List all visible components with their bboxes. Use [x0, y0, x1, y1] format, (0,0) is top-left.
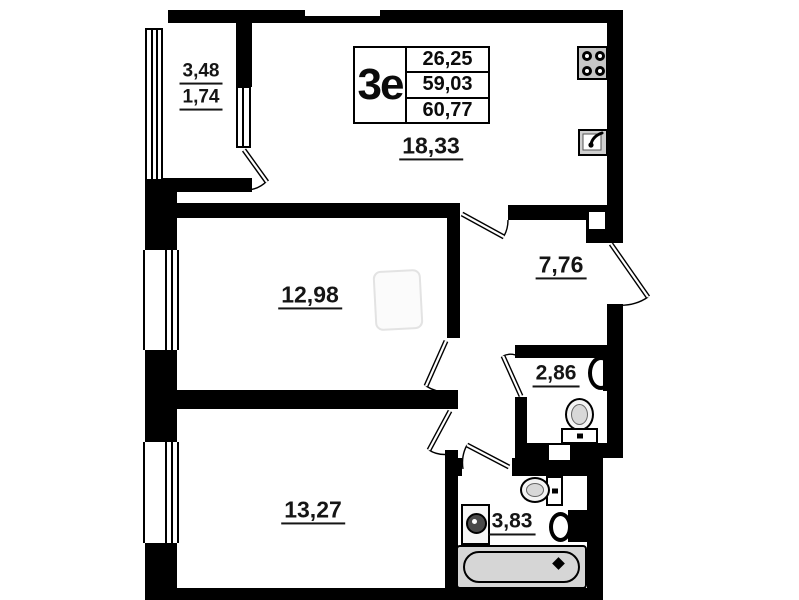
unit-areas-table: 26,25 59,03 60,77 — [407, 48, 488, 122]
mainroom-door-leaf — [462, 214, 504, 237]
wall-bedroom1-right — [447, 218, 460, 338]
bedroom2-area-label: 13,27 — [281, 497, 345, 524]
floor-plan: 3е 26,25 59,03 60,77 3,48 1,74 18,33 12,… — [0, 0, 799, 600]
wc-toilet-tank-icon — [561, 428, 598, 444]
ghost-furniture — [372, 269, 423, 331]
hallway-area-label: 7,76 — [536, 252, 587, 279]
bedroom2-door-leaf — [429, 411, 450, 450]
stove-icon — [577, 46, 608, 80]
unit-area-row: 60,77 — [407, 99, 488, 122]
balcony-glazing — [145, 28, 163, 179]
wall-mainroom-bottom-right — [508, 205, 589, 220]
mainroom-door-arc — [504, 220, 508, 236]
wall-bottom — [145, 588, 603, 600]
wall-mid-divider — [145, 390, 458, 409]
wall-wc-left — [515, 397, 527, 458]
balcony-area-counted: 1,74 — [180, 88, 223, 111]
bathroom-door-leaf — [467, 445, 509, 467]
kitchen-living-area-label: 18,33 — [399, 133, 463, 160]
wc-area-label: 2,86 — [533, 362, 580, 387]
wall-top-notch — [305, 10, 380, 16]
wall-wc-top — [515, 345, 607, 358]
wc-toilet-bowl-icon — [565, 398, 594, 431]
wall-balcony-divider — [236, 10, 252, 87]
wall-mainroom-bottom-left — [145, 203, 460, 218]
balcony-area-total: 3,48 — [180, 62, 223, 85]
unit-area-row: 26,25 — [407, 48, 488, 73]
balcony-area-labels: 3,48 1,74 — [180, 62, 223, 111]
unit-type-label: 3е — [355, 48, 407, 122]
wall-bath-right — [587, 458, 603, 600]
vent-shaft — [547, 443, 572, 462]
entrance-door-leaf — [611, 244, 648, 297]
bath-toilet-bowl-icon — [520, 477, 550, 503]
bathroom-door-arc — [463, 445, 468, 469]
bathtub-icon — [456, 545, 587, 589]
unit-area-row: 59,03 — [407, 73, 488, 98]
bathroom-area-label: 3,83 — [489, 510, 536, 535]
title-block: 3е 26,25 59,03 60,77 — [353, 46, 490, 124]
wall-wc-bottom — [527, 443, 623, 458]
bedroom1-door-leaf — [426, 341, 446, 386]
washing-machine-icon — [461, 504, 490, 545]
bedroom1-area-label: 12,98 — [278, 282, 342, 309]
wall-bath-top-left — [445, 458, 462, 476]
window-bedroom1 — [143, 250, 179, 350]
window-balcony-divider — [236, 86, 251, 148]
entry-niche — [589, 212, 605, 229]
wc-door-leaf — [503, 356, 521, 396]
kitchen-sink-icon — [578, 129, 608, 156]
wall-right-upper — [607, 10, 623, 243]
window-bedroom2 — [143, 442, 179, 543]
wc-basin-mount — [603, 355, 611, 391]
bath-basin-icon — [549, 512, 572, 542]
